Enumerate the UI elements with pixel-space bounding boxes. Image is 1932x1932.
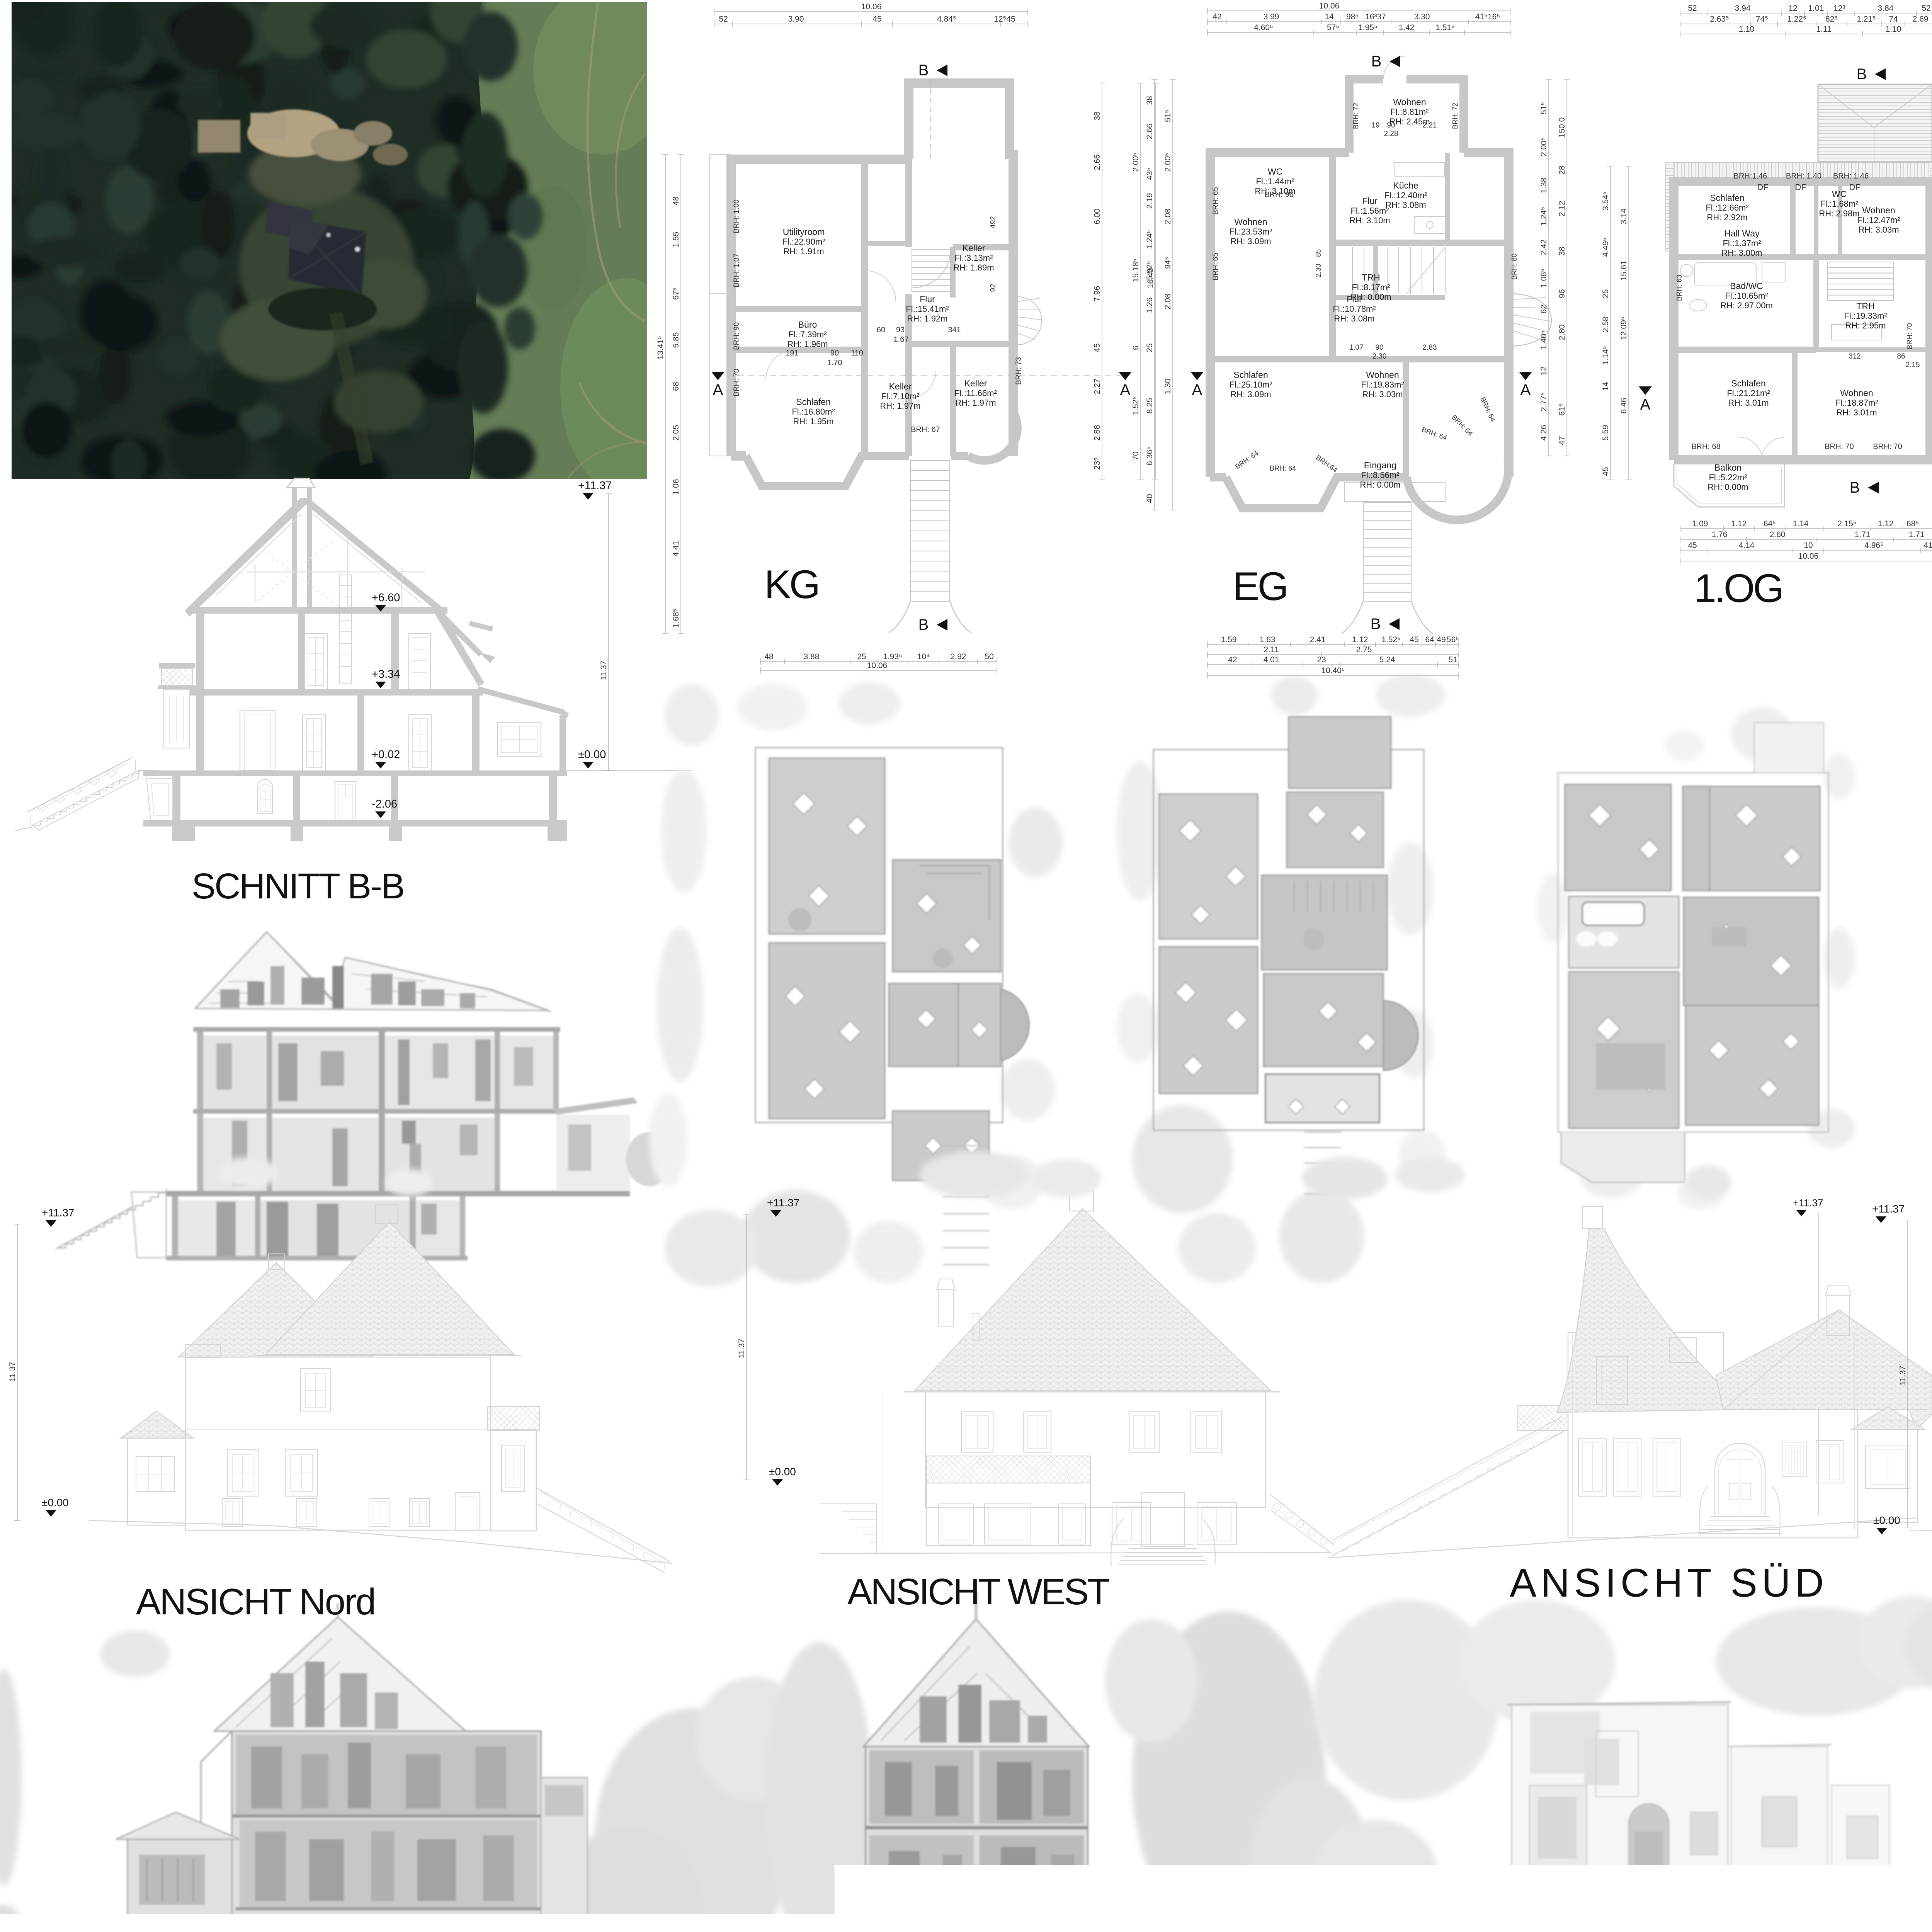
svg-text:2.00⁵: 2.00⁵	[1539, 137, 1548, 156]
svg-text:Flur: Flur	[1347, 294, 1362, 304]
svg-text:Keller: Keller	[963, 243, 985, 253]
svg-text:Fl.:15.41m²: Fl.:15.41m²	[906, 304, 949, 314]
svg-text:2.08: 2.08	[1163, 209, 1172, 224]
svg-text:45: 45	[1688, 541, 1697, 550]
svg-text:B: B	[1371, 616, 1381, 633]
svg-text:Fl.:22.90m²: Fl.:22.90m²	[782, 237, 825, 247]
svg-text:10.40⁵: 10.40⁵	[1321, 666, 1345, 675]
svg-text:74: 74	[1889, 15, 1898, 24]
svg-text:Fl.:19.83m²: Fl.:19.83m²	[1361, 380, 1404, 389]
svg-text:Fl.:1.68m²: Fl.:1.68m²	[1820, 199, 1858, 209]
svg-text:ANSICHT Nord: ANSICHT Nord	[136, 1581, 375, 1622]
svg-text:1.06⁵: 1.06⁵	[1539, 269, 1548, 288]
svg-text:+11.37: +11.37	[42, 1207, 74, 1219]
svg-text:64: 64	[1425, 635, 1434, 644]
svg-text:EG: EG	[1233, 564, 1287, 609]
svg-text:+11.37: +11.37	[578, 480, 612, 492]
svg-text:BRH: 1.00: BRH: 1.00	[733, 199, 741, 233]
svg-text:BRH: 80: BRH: 80	[1510, 253, 1518, 280]
svg-text:BRH: 70: BRH: 70	[733, 369, 741, 396]
svg-text:Fl.:12.66m²: Fl.:12.66m²	[1706, 203, 1748, 213]
svg-text:-2.06: -2.06	[372, 798, 397, 810]
svg-text:A: A	[1520, 381, 1531, 398]
svg-text:86: 86	[1897, 352, 1905, 361]
svg-text:10 m: 10 m	[1021, 1923, 1036, 1930]
svg-text:19: 19	[1371, 121, 1379, 129]
svg-text:RH: 3.01m: RH: 3.01m	[1836, 408, 1877, 417]
svg-text:4.41: 4.41	[672, 541, 680, 557]
svg-text:1.12: 1.12	[1731, 519, 1747, 528]
svg-text:2.83: 2.83	[1423, 344, 1437, 352]
svg-text:1.51⁵: 1.51⁵	[1435, 23, 1455, 32]
svg-text:14: 14	[1325, 12, 1334, 21]
svg-text:1.59: 1.59	[1221, 635, 1237, 644]
svg-text:312: 312	[1849, 352, 1861, 361]
svg-text:48: 48	[672, 196, 680, 205]
svg-text:1.38: 1.38	[1539, 178, 1548, 194]
svg-text:4.49⁵: 4.49⁵	[1601, 238, 1610, 257]
svg-text:2.08: 2.08	[1163, 294, 1172, 310]
svg-text:3.84: 3.84	[1878, 4, 1894, 13]
svg-text:2.28: 2.28	[1384, 130, 1398, 138]
svg-text:45: 45	[872, 15, 881, 24]
svg-text:Fl.:1.44m²: Fl.:1.44m²	[1256, 177, 1294, 186]
svg-text:WC: WC	[1268, 167, 1282, 177]
svg-text:1.42: 1.42	[1399, 23, 1415, 32]
svg-text:191: 191	[786, 349, 798, 357]
svg-text:23⁵: 23⁵	[1093, 457, 1102, 470]
svg-text:1.12: 1.12	[1352, 635, 1368, 644]
svg-text:2.58: 2.58	[1601, 317, 1610, 333]
svg-text:10.06: 10.06	[1319, 2, 1340, 10]
svg-text:64⁵: 64⁵	[1764, 519, 1776, 528]
svg-text:RH: 1.97m: RH: 1.97m	[880, 401, 920, 411]
svg-text:2.00⁵: 2.00⁵	[1163, 153, 1172, 172]
svg-text:92: 92	[989, 284, 997, 292]
svg-text:2.60: 2.60	[1770, 530, 1786, 539]
svg-text:BRH: 72: BRH: 72	[1352, 103, 1360, 129]
svg-text:BRH: 64: BRH: 64	[1479, 396, 1497, 423]
svg-text:1.09: 1.09	[1692, 519, 1708, 528]
svg-text:5.24: 5.24	[1379, 655, 1395, 664]
svg-text:Fl.:12.40m²: Fl.:12.40m²	[1384, 190, 1427, 200]
svg-text:2.80: 2.80	[1558, 325, 1566, 340]
svg-text:BRH: 64: BRH: 64	[1234, 449, 1260, 470]
svg-text:RH: 2.95m: RH: 2.95m	[1845, 321, 1886, 330]
svg-text:2.00⁵: 2.00⁵	[1131, 153, 1140, 172]
svg-text:SCHNITT B-B: SCHNITT B-B	[192, 866, 404, 906]
svg-text:52: 52	[1688, 4, 1697, 13]
svg-text:3.54⁵: 3.54⁵	[1601, 191, 1610, 211]
svg-text:RH: 1.95m: RH: 1.95m	[793, 417, 833, 426]
svg-text:51⁵: 51⁵	[1163, 110, 1172, 122]
svg-text:25: 25	[857, 652, 866, 661]
svg-text:1.30: 1.30	[1163, 379, 1172, 395]
svg-text:BRH: 90: BRH: 90	[733, 322, 741, 350]
svg-text:4.26: 4.26	[1539, 425, 1548, 441]
svg-text:1.55: 1.55	[672, 232, 680, 248]
svg-text:Wohnen: Wohnen	[1840, 388, 1873, 398]
svg-text:Flur: Flur	[920, 294, 935, 304]
svg-text:Fl.:18.87m²: Fl.:18.87m²	[1835, 398, 1878, 408]
svg-text:Utilityroom: Utilityroom	[783, 227, 825, 237]
svg-text:+11.37: +11.37	[767, 1197, 799, 1209]
svg-text:Flur: Flur	[1362, 196, 1378, 206]
svg-text:45: 45	[1601, 467, 1610, 476]
svg-text:10⁴: 10⁴	[917, 652, 930, 661]
svg-text:Fl.:10.78m²: Fl.:10.78m²	[1333, 304, 1376, 314]
svg-text:96: 96	[1558, 289, 1566, 298]
svg-text:Fl.:25.10m²: Fl.:25.10m²	[1229, 380, 1272, 389]
svg-text:RH: 3.09m: RH: 3.09m	[1230, 389, 1271, 399]
svg-text:Fl.:1.56m²: Fl.:1.56m²	[1350, 206, 1389, 216]
svg-text:RH: 2.92m: RH: 2.92m	[1707, 213, 1747, 222]
svg-text:5.59: 5.59	[1601, 425, 1610, 441]
svg-text:51⁵: 51⁵	[1539, 102, 1548, 114]
svg-text:RH: 3.08m: RH: 3.08m	[1385, 200, 1426, 210]
svg-text:BRH: 72: BRH: 72	[1451, 103, 1459, 129]
svg-text:Fl.:3.13m²: Fl.:3.13m²	[954, 253, 993, 263]
svg-text:7.96: 7.96	[1093, 286, 1102, 302]
svg-text:3.30: 3.30	[1414, 12, 1430, 21]
svg-text:4.01: 4.01	[1264, 655, 1279, 664]
svg-text:Fl.:7.10m²: Fl.:7.10m²	[881, 391, 919, 401]
svg-text:BRH: 67: BRH: 67	[911, 425, 940, 434]
svg-text:4.96⁵: 4.96⁵	[1864, 541, 1884, 550]
svg-text:1.10: 1.10	[1739, 25, 1755, 34]
svg-text:74⁵: 74⁵	[1756, 15, 1768, 24]
svg-text:BRH: 73: BRH: 73	[1015, 357, 1023, 385]
svg-text:52: 52	[1922, 4, 1930, 13]
svg-text:B: B	[918, 616, 929, 633]
svg-text:3.88: 3.88	[804, 652, 820, 661]
svg-text:2.88: 2.88	[1093, 425, 1102, 441]
svg-text:6.00: 6.00	[1093, 209, 1102, 224]
svg-text:TRH: TRH	[1856, 301, 1874, 311]
svg-text:492: 492	[989, 216, 997, 228]
svg-text:BRH: 70: BRH: 70	[1825, 442, 1854, 451]
svg-text:DF: DF	[1849, 182, 1860, 192]
svg-text:Keller: Keller	[889, 381, 912, 391]
svg-text:45: 45	[1093, 343, 1102, 352]
svg-text:25: 25	[1145, 343, 1154, 352]
svg-text:B: B	[1850, 479, 1860, 496]
svg-text:+11.37: +11.37	[1793, 1197, 1823, 1209]
svg-text:2.66: 2.66	[1145, 124, 1154, 139]
svg-text:90: 90	[1387, 121, 1395, 129]
svg-text:1.93⁵: 1.93⁵	[883, 652, 902, 661]
svg-text:2.92: 2.92	[951, 652, 966, 661]
svg-text:A: A	[1192, 381, 1202, 398]
svg-text:6: 6	[1131, 345, 1140, 350]
svg-text:1.71: 1.71	[1855, 530, 1871, 539]
svg-text:4 m: 4 m	[884, 1923, 895, 1930]
svg-text:1.63: 1.63	[1260, 635, 1276, 644]
svg-text:1.10: 1.10	[1886, 25, 1901, 34]
svg-text:ANSICHT WEST: ANSICHT WEST	[847, 1571, 1109, 1612]
svg-text:WC: WC	[1832, 189, 1847, 199]
svg-text:28: 28	[1558, 165, 1566, 174]
svg-text:5.92⁵: 5.92⁵	[1145, 261, 1154, 280]
svg-text:1.70: 1.70	[827, 359, 842, 367]
svg-text:B: B	[1371, 53, 1382, 70]
svg-text:38: 38	[1558, 247, 1566, 255]
svg-text:98⁵: 98⁵	[1346, 12, 1359, 21]
svg-text:10.06: 10.06	[861, 2, 882, 11]
svg-text:62: 62	[1539, 304, 1548, 313]
svg-text:BRH: 64: BRH: 64	[1450, 413, 1474, 437]
svg-text:13.41⁵: 13.41⁵	[656, 336, 665, 359]
svg-text:6.46: 6.46	[1619, 398, 1628, 414]
svg-text:±0.00: ±0.00	[769, 1466, 796, 1478]
svg-text:4.84⁵: 4.84⁵	[937, 15, 956, 24]
svg-text:2.15: 2.15	[1906, 361, 1920, 369]
svg-text:Schlafen: Schlafen	[796, 397, 831, 407]
svg-text:A: A	[1640, 396, 1651, 413]
svg-text:B: B	[1857, 66, 1867, 83]
svg-text:Schlafen: Schlafen	[1731, 378, 1766, 388]
svg-text:BRH: 68: BRH: 68	[1691, 442, 1721, 451]
svg-text:38: 38	[1145, 96, 1154, 105]
svg-text:14: 14	[1601, 382, 1610, 391]
svg-text:12.09⁵: 12.09⁵	[1619, 316, 1628, 340]
svg-text:Wohnen: Wohnen	[1234, 217, 1267, 227]
svg-text:41⁵16⁵: 41⁵16⁵	[1475, 12, 1500, 21]
svg-text:1.71: 1.71	[1909, 530, 1925, 539]
svg-text:TRH: TRH	[1362, 272, 1380, 282]
svg-text:2.69: 2.69	[1913, 15, 1929, 24]
svg-text:BRH: 70: BRH: 70	[1906, 323, 1913, 349]
svg-text:11.37: 11.37	[599, 661, 608, 680]
svg-text:12⁵45: 12⁵45	[994, 15, 1015, 24]
svg-text:1.52⁵: 1.52⁵	[1131, 396, 1140, 415]
svg-text:1.07: 1.07	[1349, 344, 1364, 352]
svg-text:Fl.:7.39m²: Fl.:7.39m²	[788, 330, 827, 339]
svg-text:BRH:64: BRH:64	[1315, 454, 1339, 474]
svg-text:DF: DF	[1795, 182, 1806, 192]
svg-text:2.75: 2.75	[1356, 645, 1372, 654]
svg-text:8.25: 8.25	[1145, 398, 1154, 414]
svg-text:Wohnen: Wohnen	[1393, 97, 1426, 107]
svg-text:2.19: 2.19	[1145, 193, 1154, 209]
svg-text:2.27: 2.27	[1093, 379, 1102, 395]
svg-text:RH: 3.03m: RH: 3.03m	[1858, 225, 1899, 235]
svg-text:BRH: 70: BRH: 70	[1873, 442, 1902, 451]
svg-text:1.67: 1.67	[894, 335, 909, 344]
svg-text:BRH: 64: BRH: 64	[1421, 425, 1448, 442]
svg-text:Fl.:10.65m²: Fl.:10.65m²	[1725, 291, 1768, 301]
svg-text:82⁵: 82⁵	[1825, 15, 1838, 24]
svg-text:94⁵: 94⁵	[1163, 257, 1172, 269]
svg-text:Fl.:5.22m²: Fl.:5.22m²	[1709, 473, 1747, 482]
svg-text:1.95⁵: 1.95⁵	[1358, 23, 1378, 32]
svg-text:85: 85	[1315, 249, 1322, 257]
svg-text:50: 50	[985, 652, 993, 661]
svg-text:Balkon: Balkon	[1714, 463, 1742, 473]
svg-text:68: 68	[672, 382, 680, 391]
svg-text:Fl.:1.37m²: Fl.:1.37m²	[1723, 238, 1761, 248]
svg-text:Fl.:21.21m²: Fl.:21.21m²	[1727, 388, 1770, 398]
svg-text:±0.00: ±0.00	[578, 748, 606, 761]
svg-text:KG: KG	[764, 562, 818, 607]
svg-text:47: 47	[1558, 436, 1566, 445]
svg-text:2.30: 2.30	[1372, 352, 1387, 361]
svg-text:RH: 3.08m: RH: 3.08m	[1334, 314, 1374, 323]
svg-text:+6.60: +6.60	[372, 592, 400, 604]
svg-text:Fl.:11.66m²: Fl.:11.66m²	[954, 388, 997, 398]
svg-text:42: 42	[1213, 12, 1221, 21]
svg-text:RH: 2.97.00m: RH: 2.97.00m	[1720, 301, 1773, 310]
svg-text:1.14: 1.14	[1793, 519, 1809, 528]
svg-text:10.06: 10.06	[1798, 552, 1819, 561]
svg-text:1.12: 1.12	[1878, 519, 1894, 528]
svg-text:+0.02: +0.02	[372, 748, 400, 761]
svg-text:1.24⁵: 1.24⁵	[1145, 230, 1154, 249]
svg-text:51: 51	[1448, 655, 1457, 664]
svg-text:2.15⁵: 2.15⁵	[1837, 519, 1857, 528]
svg-text:49: 49	[1437, 635, 1446, 644]
svg-text:2.12: 2.12	[1558, 201, 1566, 217]
svg-text:RH: 3.10m: RH: 3.10m	[1349, 216, 1390, 225]
svg-text:23: 23	[1317, 655, 1326, 664]
svg-text:BRH:1.46: BRH:1.46	[1734, 172, 1767, 180]
svg-text:12: 12	[1539, 366, 1548, 375]
svg-text:2.21: 2.21	[1423, 121, 1437, 129]
svg-text:Fl.:12.47m²: Fl.:12.47m²	[1857, 215, 1900, 225]
svg-text:57⁵: 57⁵	[1327, 23, 1339, 32]
svg-text:Wohnen: Wohnen	[1366, 370, 1399, 380]
svg-text:Schlafen: Schlafen	[1710, 193, 1745, 203]
svg-text:RH: 0.00m: RH: 0.00m	[1708, 482, 1748, 492]
svg-text:Wohnen: Wohnen	[1862, 205, 1895, 215]
svg-text:2.66: 2.66	[1093, 155, 1102, 170]
svg-text:RH: 3.01m: RH: 3.01m	[1728, 398, 1769, 408]
svg-text:1.01: 1.01	[1808, 4, 1824, 13]
svg-text:61⁵: 61⁵	[1558, 403, 1566, 416]
svg-text:Bad/WC: Bad/WC	[1730, 281, 1763, 291]
svg-text:93: 93	[896, 326, 905, 334]
svg-text:RH: 1.96m: RH: 1.96m	[787, 339, 828, 349]
svg-text:RH: 1.91m: RH: 1.91m	[783, 247, 824, 256]
svg-text:12³: 12³	[1833, 4, 1845, 13]
svg-text:48: 48	[764, 652, 773, 661]
svg-text:A: A	[713, 381, 723, 398]
svg-text:60: 60	[877, 326, 885, 334]
svg-text:RH: 2.98m: RH: 2.98m	[1819, 209, 1859, 218]
svg-text:Küche: Küche	[1393, 180, 1418, 190]
svg-text:4.14: 4.14	[1739, 541, 1755, 550]
svg-text:+3.34: +3.34	[372, 668, 400, 680]
svg-text:BRH: 63: BRH: 63	[1675, 275, 1683, 301]
svg-text:RH: 3.09m: RH: 3.09m	[1230, 236, 1271, 246]
svg-text:11.37: 11.37	[8, 1362, 17, 1382]
svg-text:10: 10	[1804, 541, 1813, 550]
svg-text:6.36⁵: 6.36⁵	[1145, 446, 1154, 466]
svg-text:BRH: 1.46: BRH: 1.46	[1833, 172, 1869, 180]
svg-text:67⁵: 67⁵	[672, 287, 680, 300]
svg-text:11.37: 11.37	[737, 1339, 746, 1359]
svg-text:52: 52	[719, 15, 728, 24]
svg-text:25: 25	[1601, 289, 1610, 298]
svg-text:BRH: 65: BRH: 65	[1212, 187, 1220, 215]
svg-text:RH: 0.00m: RH: 0.00m	[1360, 480, 1400, 490]
svg-text:1.11: 1.11	[1816, 25, 1831, 34]
svg-text:56⁵: 56⁵	[1447, 635, 1459, 644]
svg-text:RH: 1.97m: RH: 1.97m	[955, 398, 996, 408]
svg-text:3.90: 3.90	[788, 15, 804, 24]
svg-text:1.68⁵: 1.68⁵	[672, 609, 680, 628]
svg-text:B: B	[918, 62, 929, 79]
svg-text:RH: 1.92m: RH: 1.92m	[907, 314, 947, 323]
svg-text:2.77⁵: 2.77⁵	[1539, 392, 1548, 412]
svg-text:Hall Way: Hall Way	[1724, 228, 1760, 238]
svg-text:8 m: 8 m	[975, 1923, 986, 1930]
svg-text:4.60⁵: 4.60⁵	[1254, 23, 1273, 32]
svg-text:1.52⁵: 1.52⁵	[1381, 635, 1401, 644]
svg-text:11.37: 11.37	[1898, 1366, 1907, 1386]
svg-text:±0.00: ±0.00	[42, 1497, 69, 1509]
svg-text:RH: 1.89m: RH: 1.89m	[953, 263, 994, 272]
svg-text:3.14: 3.14	[1619, 208, 1628, 224]
svg-text:6 m: 6 m	[930, 1923, 940, 1930]
svg-text:16³37: 16³37	[1365, 12, 1386, 21]
svg-text:2.42: 2.42	[1539, 240, 1548, 255]
svg-text:Schlafen: Schlafen	[1233, 370, 1268, 380]
svg-text:3.99: 3.99	[1264, 12, 1279, 21]
svg-text:RH: 3.00m: RH: 3.00m	[1721, 248, 1762, 258]
svg-text:Fl.:8.56m²: Fl.:8.56m²	[1361, 470, 1399, 480]
svg-text:15.61: 15.61	[1619, 260, 1628, 281]
svg-text:BRH: 96: BRH: 96	[1264, 190, 1294, 199]
svg-text:Eingang: Eingang	[1364, 460, 1396, 470]
svg-text:Fl.:23.53m²: Fl.:23.53m²	[1229, 227, 1272, 236]
svg-text:±0.00: ±0.00	[1873, 1514, 1900, 1526]
svg-text:41: 41	[1923, 541, 1932, 550]
svg-text:Fl.:8.81m²: Fl.:8.81m²	[1390, 107, 1429, 117]
svg-text:2.05: 2.05	[672, 425, 680, 441]
svg-text:1.26: 1.26	[1145, 298, 1154, 313]
svg-text:Büro: Büro	[798, 320, 817, 330]
svg-text:Fl.:8.17m²: Fl.:8.17m²	[1352, 282, 1390, 292]
svg-text:90: 90	[1375, 344, 1383, 352]
svg-text:15.18⁵: 15.18⁵	[1131, 259, 1140, 282]
svg-text:12: 12	[1788, 4, 1797, 13]
svg-text:2.63⁵: 2.63⁵	[1710, 15, 1729, 24]
svg-text:43⁵: 43⁵	[1145, 168, 1154, 180]
svg-text:1.OG: 1.OG	[1694, 566, 1782, 611]
svg-text:1.24⁵: 1.24⁵	[1539, 207, 1548, 226]
svg-text:1.40⁵: 1.40⁵	[1539, 330, 1548, 350]
svg-text:0 m: 0 m	[793, 1923, 804, 1930]
svg-text:1.21⁵: 1.21⁵	[1857, 15, 1876, 24]
svg-text:70: 70	[1131, 451, 1140, 460]
svg-text:150.0: 150.0	[1558, 117, 1566, 138]
svg-text:110: 110	[851, 349, 863, 357]
svg-text:Fl.:16.80m²: Fl.:16.80m²	[792, 407, 835, 417]
svg-text:Fl.:19.33m²: Fl.:19.33m²	[1844, 311, 1887, 321]
svg-text:341: 341	[948, 326, 961, 334]
svg-text:RH: 3.03m: RH: 3.03m	[1362, 389, 1403, 399]
svg-text:ANSICHT SÜD: ANSICHT SÜD	[1510, 1561, 1828, 1605]
svg-text:1.06: 1.06	[672, 479, 680, 495]
svg-text:2.11: 2.11	[1264, 645, 1279, 654]
svg-text:45: 45	[1410, 635, 1418, 644]
svg-text:BRH: 1.40: BRH: 1.40	[1786, 172, 1821, 180]
svg-text:38: 38	[1093, 111, 1102, 120]
svg-text:A: A	[1120, 381, 1131, 398]
svg-text:1.76: 1.76	[1712, 530, 1728, 539]
svg-text:1.22⁵: 1.22⁵	[1787, 15, 1806, 24]
